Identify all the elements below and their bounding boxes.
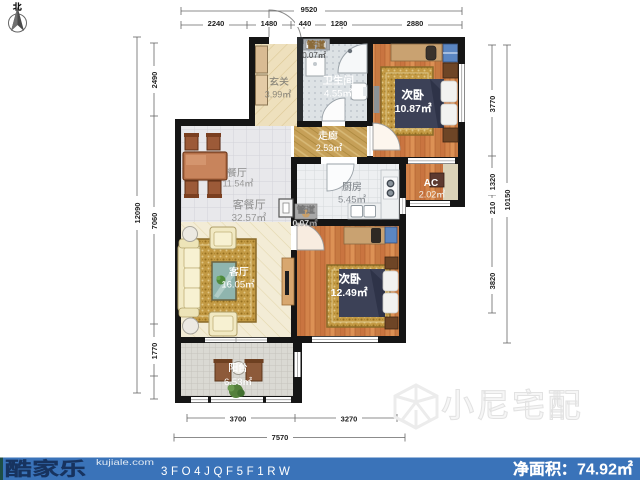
svg-text:1480: 1480 — [261, 19, 278, 28]
svg-text:小尼宅配: 小尼宅配 — [441, 379, 583, 427]
svg-text:3270: 3270 — [341, 415, 358, 424]
svg-text:kujiale.com: kujiale.com — [96, 457, 154, 467]
svg-text:440: 440 — [299, 19, 312, 28]
svg-text:11.54㎡: 11.54㎡ — [223, 177, 254, 190]
svg-text:9520: 9520 — [301, 5, 318, 14]
svg-text:玄关: 玄关 — [269, 73, 290, 88]
svg-text:2880: 2880 — [407, 19, 424, 28]
svg-text:酷家乐: 酷家乐 — [5, 455, 86, 480]
svg-text:管道: 管道 — [297, 203, 316, 216]
svg-text:2.02㎡: 2.02㎡ — [419, 188, 446, 201]
svg-text:10.87㎡: 10.87㎡ — [395, 101, 432, 116]
svg-text:7060: 7060 — [150, 213, 159, 230]
svg-text:1320: 1320 — [488, 174, 497, 191]
svg-text:1770: 1770 — [150, 343, 159, 360]
svg-text:4.55㎡: 4.55㎡ — [324, 86, 352, 100]
svg-text:3820: 3820 — [488, 273, 497, 290]
svg-text:0.07㎡: 0.07㎡ — [302, 50, 326, 61]
svg-text:3.99㎡: 3.99㎡ — [265, 88, 292, 101]
svg-text:2.53㎡: 2.53㎡ — [316, 141, 343, 154]
svg-text:0.07㎡: 0.07㎡ — [292, 217, 318, 229]
svg-text:2240: 2240 — [208, 19, 225, 28]
svg-text:12090: 12090 — [133, 203, 142, 224]
svg-text:6.53㎡: 6.53㎡ — [224, 374, 252, 388]
svg-text:3770: 3770 — [488, 96, 497, 113]
svg-text:12.49㎡: 12.49㎡ — [331, 285, 368, 300]
svg-text:阳台: 阳台 — [228, 359, 248, 374]
svg-text:3700: 3700 — [230, 415, 247, 424]
svg-text:5.45㎡: 5.45㎡ — [338, 192, 366, 206]
svg-text:3FO4JQF5F1RW: 3FO4JQF5F1RW — [161, 466, 293, 478]
svg-text:2490: 2490 — [150, 72, 159, 89]
svg-text:7570: 7570 — [272, 433, 289, 442]
svg-text:210: 210 — [488, 202, 497, 215]
svg-text:10150: 10150 — [503, 190, 512, 211]
svg-text:16.05㎡: 16.05㎡ — [221, 277, 254, 291]
svg-text:走廊: 走廊 — [317, 127, 338, 142]
svg-text:1280: 1280 — [331, 19, 348, 28]
